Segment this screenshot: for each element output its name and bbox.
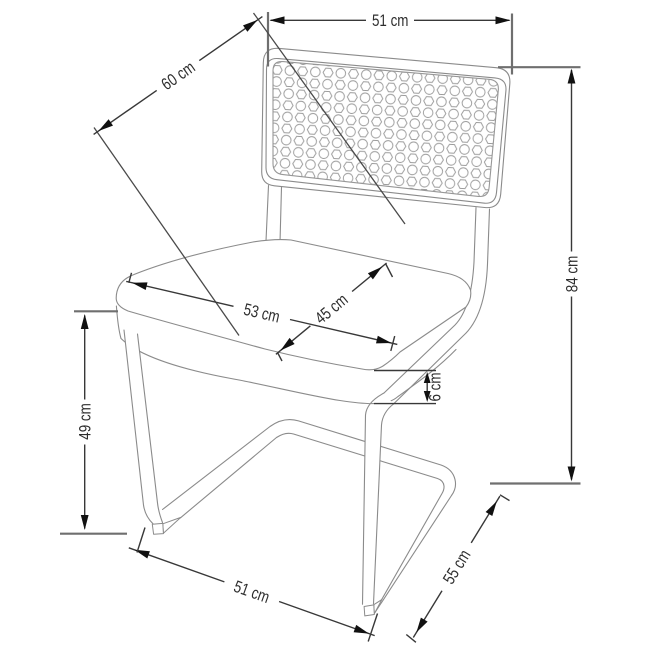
svg-text:84 cm: 84 cm xyxy=(562,256,581,293)
svg-text:51 cm: 51 cm xyxy=(372,11,409,30)
svg-text:49 cm: 49 cm xyxy=(76,403,95,440)
svg-text:6 cm: 6 cm xyxy=(425,373,444,402)
